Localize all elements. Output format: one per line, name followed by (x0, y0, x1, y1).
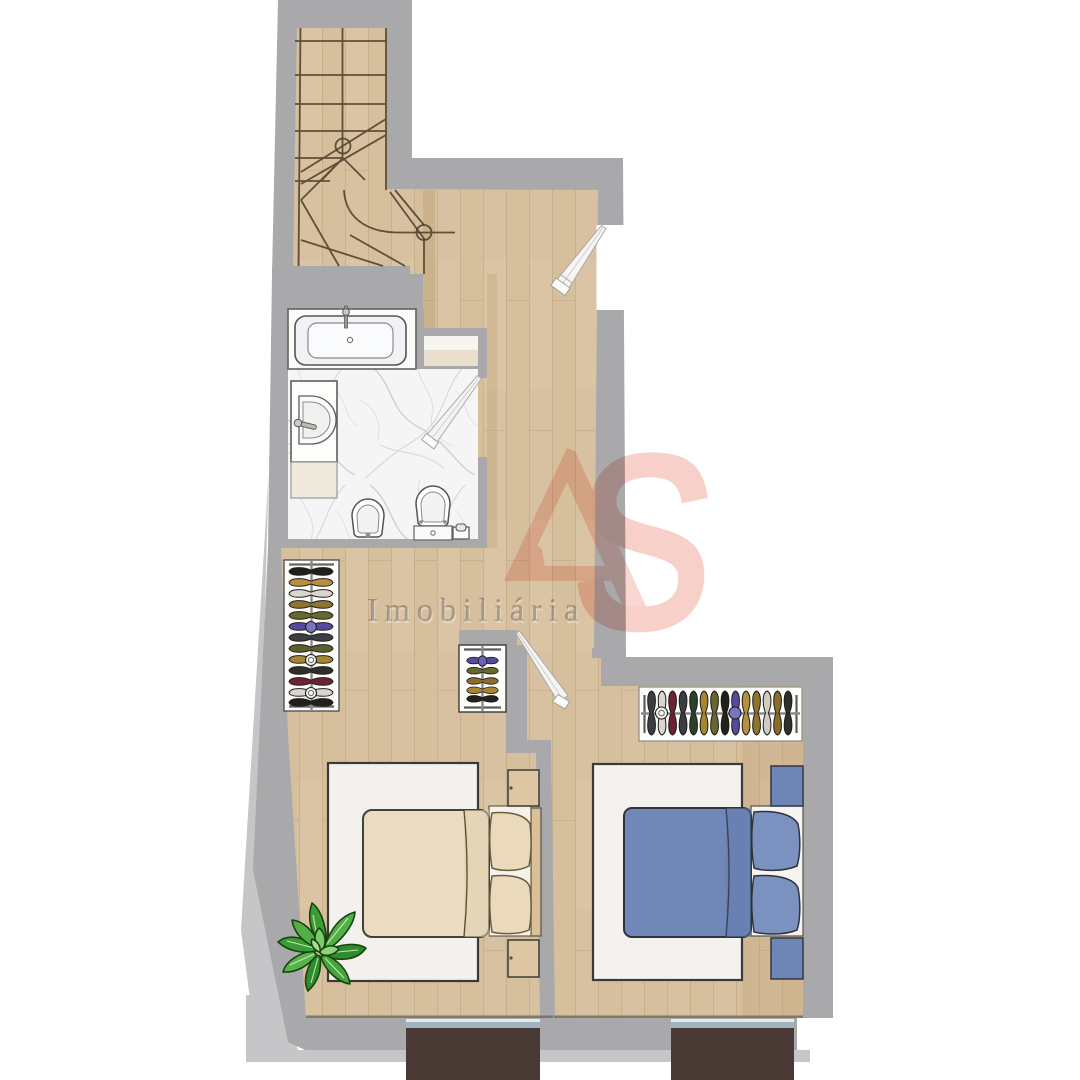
svg-text:Imobiliária: Imobiliária (367, 593, 585, 629)
svg-text:S: S (565, 407, 723, 678)
